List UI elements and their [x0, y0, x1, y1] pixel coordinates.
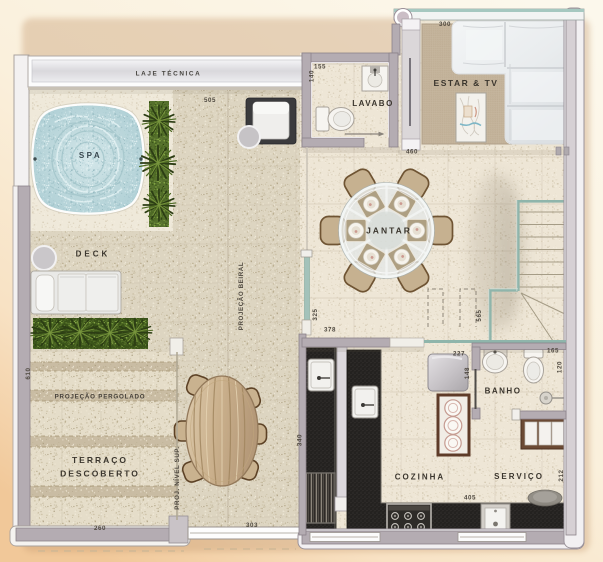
svg-text:212: 212 — [558, 469, 565, 481]
svg-text:155: 155 — [314, 64, 326, 71]
svg-text:120: 120 — [557, 361, 564, 373]
svg-text:505: 505 — [204, 97, 216, 104]
svg-text:300: 300 — [439, 21, 451, 28]
svg-text:565: 565 — [476, 309, 483, 321]
svg-text:140: 140 — [309, 70, 316, 82]
svg-text:LAJE TÉCNICA: LAJE TÉCNICA — [136, 69, 202, 78]
svg-text:JANTAR: JANTAR — [366, 226, 412, 236]
svg-text:148: 148 — [464, 367, 471, 379]
svg-text:BANHO: BANHO — [485, 387, 522, 396]
svg-text:PROJEÇÃO PERGOLADO: PROJEÇÃO PERGOLADO — [55, 394, 146, 401]
svg-text:DECK: DECK — [76, 250, 111, 259]
svg-text:SERVIÇO: SERVIÇO — [494, 472, 544, 481]
svg-text:405: 405 — [464, 495, 476, 502]
svg-text:LAVABO: LAVABO — [352, 99, 394, 108]
svg-text:260: 260 — [94, 525, 106, 532]
svg-text:303: 303 — [246, 522, 258, 529]
svg-text:PROJ. NÍVEL SUP.: PROJ. NÍVEL SUP. — [173, 446, 181, 509]
svg-text:165: 165 — [547, 348, 559, 355]
svg-text:610: 610 — [25, 367, 32, 379]
svg-text:227: 227 — [453, 351, 465, 358]
svg-text:ESTAR & TV: ESTAR & TV — [434, 78, 499, 88]
svg-text:325: 325 — [312, 308, 319, 320]
svg-text:PROJEÇÃO BEIRAL: PROJEÇÃO BEIRAL — [238, 262, 245, 330]
svg-text:SPA: SPA — [79, 151, 102, 160]
svg-text:COZINHA: COZINHA — [395, 473, 445, 482]
svg-text:DESCOBERTO: DESCOBERTO — [60, 469, 140, 479]
svg-text:TERRAÇO: TERRAÇO — [72, 455, 128, 465]
svg-text:378: 378 — [324, 327, 336, 334]
svg-text:460: 460 — [406, 149, 418, 156]
svg-text:340: 340 — [297, 434, 304, 446]
